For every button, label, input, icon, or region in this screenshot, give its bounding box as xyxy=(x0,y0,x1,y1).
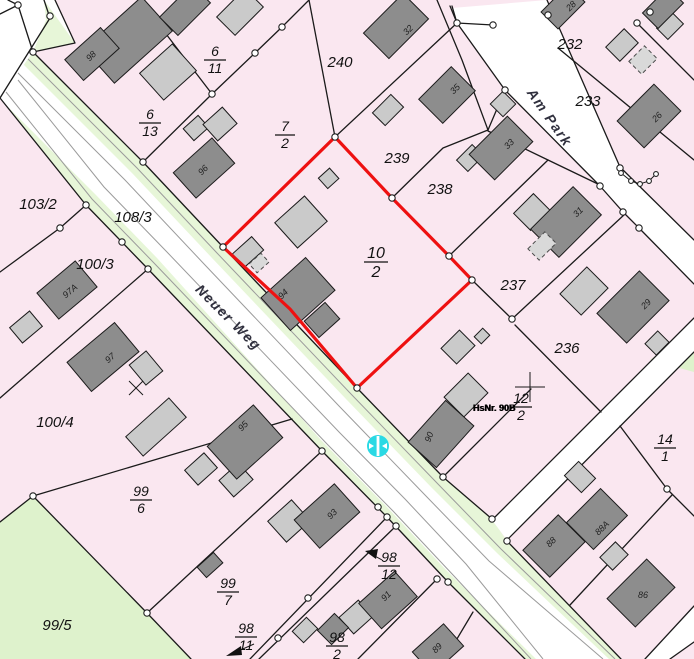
svg-text:6: 6 xyxy=(137,500,145,516)
svg-text:98: 98 xyxy=(381,549,397,565)
parcel-label-233: 233 xyxy=(574,93,601,110)
svg-text:11: 11 xyxy=(239,637,254,653)
svg-text:6: 6 xyxy=(211,43,219,59)
parcel-label-100-4: 100/4 xyxy=(36,414,74,431)
svg-text:7: 7 xyxy=(224,592,233,608)
svg-text:10: 10 xyxy=(367,245,385,262)
parcel-label-108-3: 108/3 xyxy=(114,209,152,226)
hydrant-marker-icon xyxy=(367,435,389,457)
house-number-annotation: HsNr. 90B xyxy=(473,403,516,413)
svg-text:2: 2 xyxy=(371,264,381,281)
svg-text:14: 14 xyxy=(657,431,673,447)
svg-text:2: 2 xyxy=(332,646,341,659)
svg-text:11: 11 xyxy=(208,60,223,76)
svg-text:98: 98 xyxy=(329,629,345,645)
svg-text:99: 99 xyxy=(220,575,236,591)
svg-text:2: 2 xyxy=(516,407,525,423)
parcel-label-237: 237 xyxy=(499,277,526,294)
svg-text:12: 12 xyxy=(513,390,529,406)
map-canvas[interactable]: 240 239 238 237 236 232 233 103/2 108/3 … xyxy=(0,0,694,659)
parcel-label-238: 238 xyxy=(426,181,453,198)
svg-text:7: 7 xyxy=(281,118,290,134)
parcel-label-240: 240 xyxy=(326,54,353,71)
parcel-label-239: 239 xyxy=(383,150,410,167)
parcel-label-103-2: 103/2 xyxy=(19,196,57,213)
parcel-label-99-5: 99/5 xyxy=(42,617,72,634)
svg-text:12: 12 xyxy=(381,566,397,582)
parcel-label-236: 236 xyxy=(553,340,580,357)
svg-text:2: 2 xyxy=(280,135,289,151)
parcel-label-98-12: 98 12 xyxy=(378,549,400,582)
building-label-86: 86 xyxy=(638,590,648,600)
svg-text:98: 98 xyxy=(238,620,254,636)
svg-text:6: 6 xyxy=(146,106,154,122)
svg-text:13: 13 xyxy=(142,123,158,139)
cadastral-map-viewport[interactable]: 240 239 238 237 236 232 233 103/2 108/3 … xyxy=(0,0,694,659)
svg-text:1: 1 xyxy=(661,448,669,464)
svg-text:99: 99 xyxy=(133,483,149,499)
parcel-label-232: 232 xyxy=(556,36,583,53)
parcel-label-100-3: 100/3 xyxy=(76,256,114,273)
